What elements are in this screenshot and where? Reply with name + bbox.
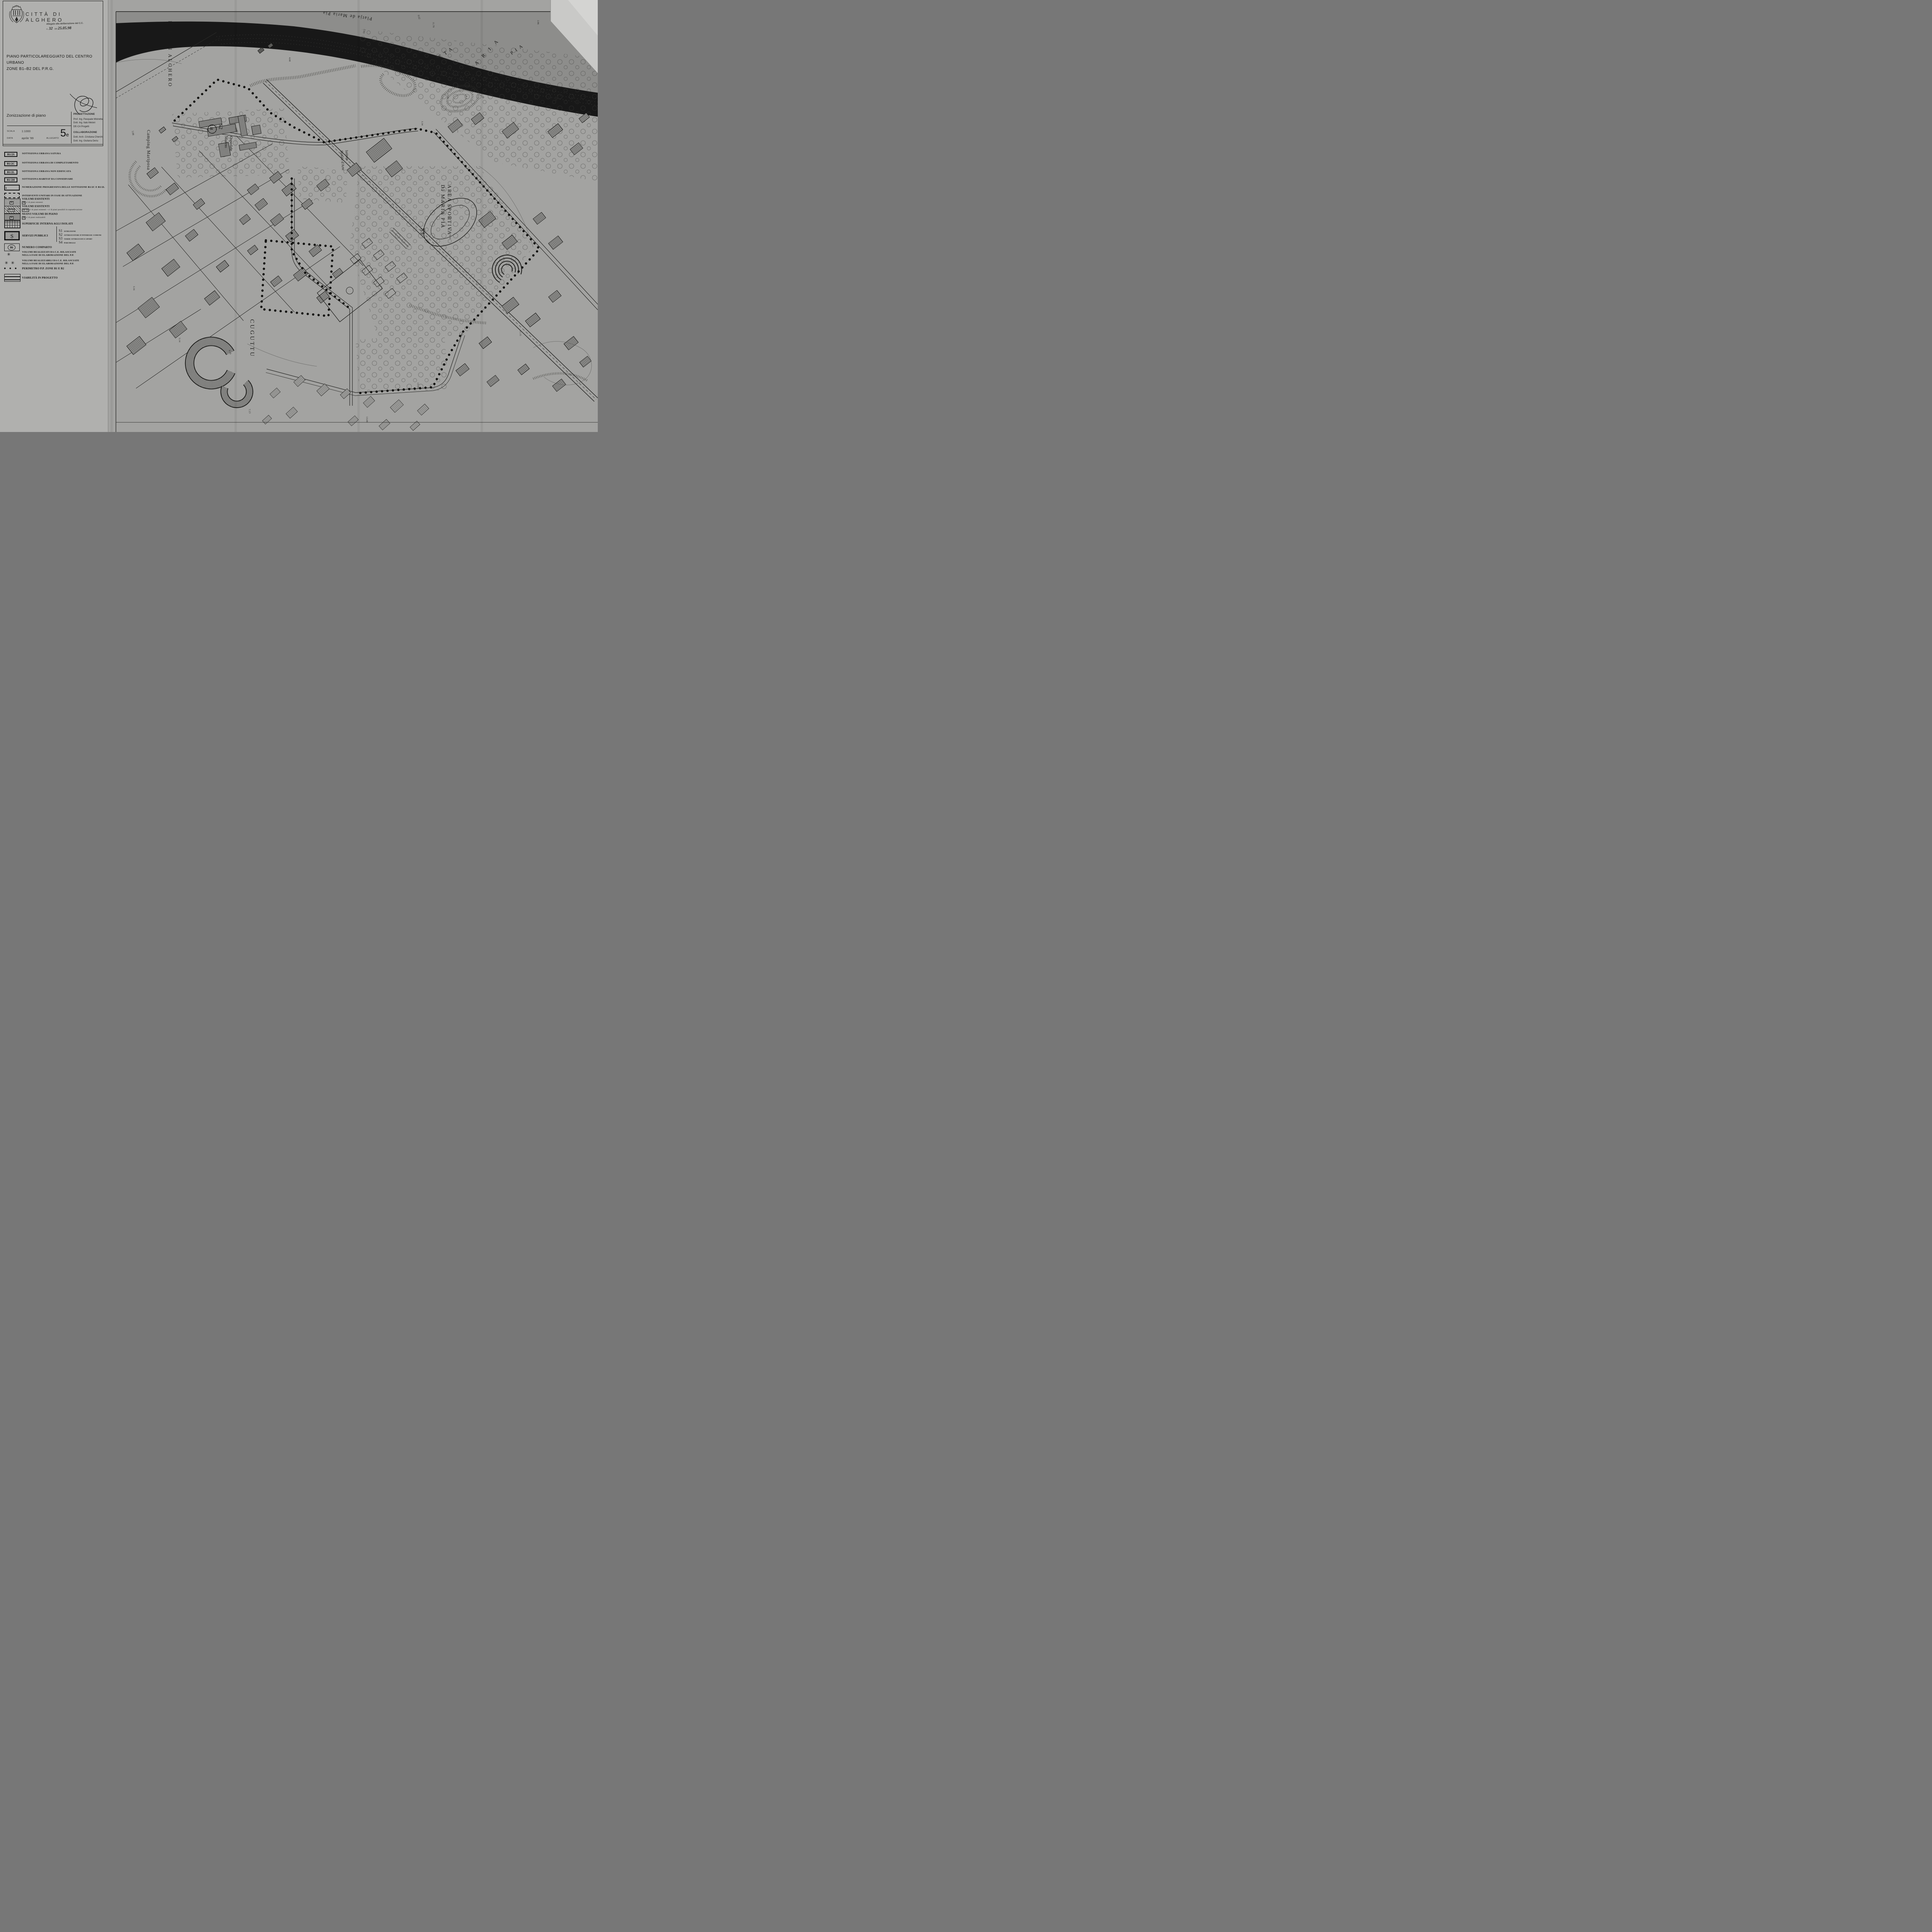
title-block: CITTÀ DI ALGHERO Allegato alla deliberaz… xyxy=(3,1,103,146)
stamp-del-label: del xyxy=(54,28,57,30)
scala-label: SCALA xyxy=(7,130,15,133)
hospital-name-line2: Marino xyxy=(223,136,228,151)
stamp-n-value: 32 xyxy=(49,26,53,31)
spot-elevation: 4.08 xyxy=(288,57,291,61)
zone-swatch: B1/2H xyxy=(4,177,17,182)
sport-area-line1: AREA SPORTIVA xyxy=(446,185,453,236)
allegato-number-value: 5 xyxy=(60,127,66,139)
spot-elevation: 13.98 xyxy=(446,93,449,99)
nuovi-volumi-sub: 2p n' di piani realizzabili xyxy=(22,216,105,219)
district-label: CUGUTTU xyxy=(248,319,255,358)
comparto-label: NUMERO COMPARTO xyxy=(22,246,105,249)
hospital-code-label: S2 xyxy=(217,124,223,129)
volumi-sopraelevazione-label: VOLUMI ESISTENTI xyxy=(22,205,105,208)
deliberation-stamp: Allegato alla deliberazione del C.C. n. … xyxy=(46,22,102,31)
zone-label: SOTTOZONA HABITAT DA CONSERVARE xyxy=(22,178,105,181)
allegato-number: 5e xyxy=(60,127,69,139)
perimeter-dots-icon: ● ● ● xyxy=(4,266,18,270)
scala-value: 1:1000 xyxy=(22,129,31,133)
viabilita-label: VIABILITÀ IN PROGETTO xyxy=(22,276,105,279)
spot-elevation: 11.79 xyxy=(432,22,435,27)
data-value: aprile '99 xyxy=(22,136,34,140)
zone-label: SOTTOZONA URBANA SATURA xyxy=(22,152,105,155)
helipad-label: H xyxy=(209,127,213,130)
numerazione-label: NUMERAZIONE PROGRESSIVA DELLE SOTTOZONE … xyxy=(22,186,105,189)
volumi-esistenti-label: VOLUMI ESISTENTI xyxy=(22,197,105,201)
data-label: DATA xyxy=(7,137,13,139)
plan-title-line2: ZONE B1–B2 DEL P.R.G. xyxy=(7,66,103,72)
servizi-brace xyxy=(56,226,57,242)
sea-label: RADA DI ALGHERO xyxy=(167,21,173,88)
stamp-date: 25.05.98 xyxy=(58,26,71,31)
spot-elevation: 13.08 xyxy=(366,417,368,422)
zone-swatch: B1/2C xyxy=(4,161,17,166)
servizio-code: S4 xyxy=(59,240,63,244)
piani-tag: 2p+1p xyxy=(22,209,29,212)
volumi-realizzati-line2: NELLA FASE DI ELABORAZIONE DEL P.P. xyxy=(22,254,105,257)
divider-vertical xyxy=(71,112,71,143)
nuovi-volumi-label: NUOVI VOLUMI DI PIANO xyxy=(22,213,105,216)
credits-column: PROGETTAZIONE Prof. Ing. Pasquale Mistre… xyxy=(73,112,103,143)
comparto-number: 86 xyxy=(8,245,15,250)
title-block-bottom-rule xyxy=(3,144,103,145)
municipality-title: CITTÀ DI ALGHERO xyxy=(26,11,103,23)
allegato-letter: e xyxy=(66,132,69,138)
hospital-name-line1: Ospedale xyxy=(228,136,233,151)
piani-sub-text: n' di piani esistenti xyxy=(26,201,43,204)
sport-area-label: AREA SPORTIVA DI MARIA PIA xyxy=(440,185,453,236)
zone-swatch: B1/2L xyxy=(4,170,17,175)
piani-tag: 2p xyxy=(22,216,26,219)
numerazione-swatch: 1 xyxy=(4,185,20,190)
spot-elevation: 8.10 xyxy=(449,235,451,239)
zone-label: SOTTOZONA URBANA DI COMPLETAMENTO xyxy=(22,162,105,165)
piani-tag: 2p xyxy=(10,201,14,204)
divider-line xyxy=(7,126,71,126)
double-star-icon: ✳ ✳ xyxy=(5,260,15,265)
plan-title-line1: PIANO PARTICOLAREGGIATO DEL CENTRO URBAN… xyxy=(7,54,103,66)
sport-area-line2: DI MARIA PIA xyxy=(440,185,446,236)
volumi-realizzabili-line1: VOLUMI REALIZZABILI DA C.E. RILASCIATE xyxy=(22,259,105,262)
perimetro-label: PERIMETRO P.P. ZONE B1 E B2 xyxy=(22,267,105,270)
volumi-esistenti-sub: 2p n' di piani esistenti xyxy=(22,201,105,204)
piani-tag: 2p+1p xyxy=(8,209,15,212)
piani-tag: 2p xyxy=(10,216,14,219)
servizio-label: PARCHEGGI xyxy=(64,242,76,244)
comparto-swatch: 86 xyxy=(4,243,20,251)
spot-elevation: 3.72 xyxy=(431,73,434,77)
plan-title: PIANO PARTICOLAREGGIATO DEL CENTRO URBAN… xyxy=(7,54,103,72)
spot-elevation: 4.05 xyxy=(554,97,557,101)
spot-elevation: 3.16 xyxy=(133,286,135,290)
volumi-sopraelevazione-sub: 2p+1p n' di piani esistenti + n' di pian… xyxy=(22,208,105,212)
servizio-item: S4 PARCHEGGI xyxy=(59,238,75,245)
interventi-swatch xyxy=(4,193,20,198)
spot-elevation: 5.14 xyxy=(178,338,181,342)
progettazione-name: Prof. Ing. Pasquale Mistretta xyxy=(73,118,103,122)
piani-sub-text: n' di piani esistenti + n' di piani poss… xyxy=(29,209,82,211)
servizi-swatch: S xyxy=(4,231,20,240)
progettazione-name: Dott. Ing. Italo Meloni xyxy=(73,121,103,125)
spot-elevation: 3.34 xyxy=(421,121,423,125)
superficie-label: SUPERFICIE INTERNA AGLI ISOLATI xyxy=(22,222,105,225)
zone-swatch: B1/2S xyxy=(4,152,17,157)
camping-label: Camping Mariposa xyxy=(146,130,151,170)
servizi-label: SERVIZI PUBBLICI xyxy=(22,234,57,237)
collaborazione-name: Dott. Ing. Giuliana Deriu xyxy=(73,139,103,143)
alghero-coat-of-arms-icon xyxy=(8,3,26,25)
piani-tag: 2p xyxy=(22,201,26,204)
spot-elevation: 11.15 xyxy=(519,330,522,336)
volumi-realizzati-line1: VOLUMI REALIZZATI DA C.E. RILASCIATE xyxy=(22,251,105,254)
volumi-sopraelevazione-swatch: 2p+1p xyxy=(4,206,20,214)
progettazione-name: DE-CA Progetti xyxy=(73,125,103,129)
volumi-realizzati-label: VOLUMI REALIZZATI DA C.E. RILASCIATE NEL… xyxy=(22,251,105,257)
superficie-swatch xyxy=(4,220,20,228)
piani-sub-text: n' di piani realizzabili xyxy=(26,216,46,219)
hospital-name-label: Ospedale Marino xyxy=(223,136,233,151)
interventi-label: INTERVENTI UNITARI IN FASE DI ATTUAZIONE xyxy=(22,194,105,197)
progettazione-label: PROGETTAZIONE xyxy=(73,112,103,116)
spot-elevation: 2.86 xyxy=(537,20,539,24)
sport-code-label: S3 xyxy=(419,228,426,235)
plan-sheet: RADA DI ALGHERO Platja de Maria Pia PINE… xyxy=(0,0,598,432)
volumi-realizzabili-line2: NELLA FASE DI ELABORAZIONE DEL P.P. xyxy=(22,262,105,265)
school-label: Istituto Statale d'Arte xyxy=(339,150,350,171)
allegato-label: ALLEGATO xyxy=(46,137,59,139)
collaborazione-name: Dott. Arch. Cristiana Cherchi xyxy=(73,136,103,139)
title-and-legend-panel: CITTÀ DI ALGHERO Allegato alla deliberaz… xyxy=(0,0,108,432)
zone-label: SOTTOZONA URBANA NON EDIFICATA xyxy=(22,170,105,173)
viabilita-swatch xyxy=(4,274,20,282)
spot-elevation: 13.15 xyxy=(417,383,419,388)
plan-subtitle: Zonizzazione di piano xyxy=(7,113,46,118)
star-icon: ✳ xyxy=(7,252,10,257)
volumi-realizzabili-label: VOLUMI REALIZZABILI DA C.E. RILASCIATE N… xyxy=(22,259,105,265)
volumi-esistenti-swatch: 2p xyxy=(4,199,20,206)
stamp-n-label: n. xyxy=(46,28,48,31)
collaborazione-label: COLLABORAZIONE xyxy=(73,131,103,134)
